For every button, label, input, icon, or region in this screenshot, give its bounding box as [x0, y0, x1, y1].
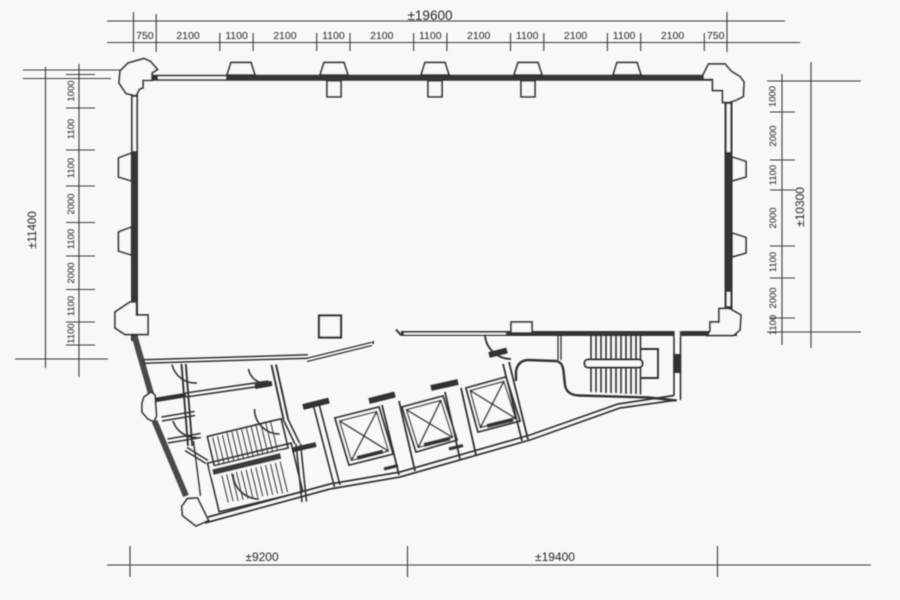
svg-text:2000: 2000: [768, 125, 779, 146]
svg-text:±19400: ±19400: [535, 550, 575, 564]
svg-text:1100: 1100: [768, 252, 779, 272]
svg-text:750: 750: [136, 30, 154, 42]
svg-text:1100: 1100: [66, 119, 77, 139]
svg-text:1100: 1100: [66, 323, 77, 343]
svg-text:1100: 1100: [768, 165, 779, 185]
svg-text:2100: 2100: [564, 30, 588, 42]
svg-text:1000: 1000: [66, 80, 77, 101]
svg-text:1100: 1100: [66, 296, 77, 316]
svg-text:750: 750: [707, 30, 725, 42]
svg-text:1100: 1100: [768, 315, 779, 335]
svg-text:±19600: ±19600: [408, 8, 453, 23]
svg-text:±9200: ±9200: [245, 550, 279, 564]
svg-text:2000: 2000: [768, 207, 779, 228]
svg-text:1000: 1000: [768, 86, 779, 107]
svg-text:2100: 2100: [273, 30, 297, 42]
svg-text:2100: 2100: [467, 30, 491, 42]
svg-text:±10300: ±10300: [793, 187, 807, 227]
svg-text:1100: 1100: [322, 30, 345, 42]
svg-text:±11400: ±11400: [27, 211, 39, 248]
svg-text:1100: 1100: [225, 30, 248, 42]
svg-text:1100: 1100: [419, 30, 442, 42]
svg-text:1100: 1100: [613, 30, 636, 42]
svg-text:2100: 2100: [661, 30, 685, 42]
svg-text:2000: 2000: [768, 287, 779, 308]
svg-text:2100: 2100: [370, 30, 394, 42]
svg-text:1100: 1100: [66, 158, 77, 178]
svg-text:1100: 1100: [66, 229, 77, 249]
svg-text:1100: 1100: [516, 30, 539, 42]
svg-text:2000: 2000: [66, 193, 77, 214]
svg-text:2100: 2100: [176, 30, 200, 42]
svg-text:2000: 2000: [66, 262, 77, 283]
